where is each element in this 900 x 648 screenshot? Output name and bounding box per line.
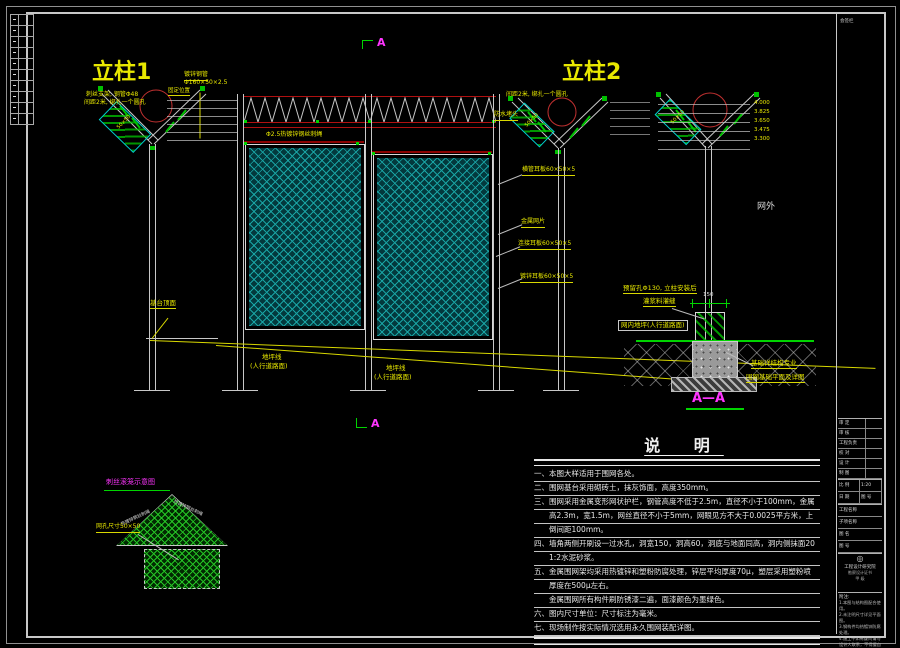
guide-line <box>167 116 238 117</box>
mesh-panel-1 <box>245 144 365 330</box>
elevation-line <box>658 149 750 150</box>
note-line: 二、围网基台采用砌砖土，抹灰饰面，高度350mm。 <box>534 482 820 496</box>
note-line: 三、围网采用金属变形网状护栏，钢管高度不低于2.5m，直径不小于100mm，金属… <box>534 496 820 510</box>
inner-pavement-label: 网内地坪(人行道路面) <box>618 320 688 331</box>
section-marker-top-label: A <box>377 37 386 50</box>
guide-line <box>167 108 238 109</box>
mesh-fill <box>249 148 361 326</box>
titleblock-row-label: 工程负责 <box>838 439 866 448</box>
guide-line <box>167 140 238 141</box>
titleblock-row: 图 名 <box>838 529 882 541</box>
elevation-line <box>658 131 750 132</box>
note-line: 金属围网所有构件刷防锈漆二遍，面漆颜色为墨绿色。 <box>534 594 820 608</box>
company-cert-line2: 甲 级 <box>838 576 882 582</box>
signoff-row <box>11 92 33 103</box>
titleblock-row-label: 设 计 <box>838 459 866 468</box>
titleblock-note: 2.未注明尺寸详见平面图。 <box>839 612 881 624</box>
elevation-line <box>658 122 750 123</box>
outside-fence-label: 网外 <box>757 202 775 212</box>
scale-value: 1:20 <box>860 480 882 491</box>
guide-line <box>610 102 650 103</box>
column1-pipe-label-line2: Φ160×50×2.5 <box>184 80 227 87</box>
titleblock-row-label: 校 对 <box>838 449 866 458</box>
titleblock-row: 工程负责 <box>838 439 882 449</box>
signoff-row <box>11 37 33 48</box>
titleblock-row-label: 审 核 <box>838 429 866 438</box>
mesh-fill <box>377 158 489 336</box>
column2-title: 立柱2 <box>562 60 621 85</box>
note-line: 五、金属围网架均采用热镀锌和塑粉防腐处理，锌层平均厚度70μ，塑层采用塑粉喷涂， <box>534 566 820 580</box>
section-marker-top-bracket <box>362 40 363 49</box>
panel-corner-dot <box>356 142 359 145</box>
panel-corner-dot <box>244 142 247 145</box>
panel-corner-dot <box>488 152 491 155</box>
sheet-label: 图 号 <box>860 492 882 503</box>
post-footing-line <box>350 390 386 391</box>
dim-tick <box>709 299 710 308</box>
detail-mesh-rect <box>144 549 220 589</box>
section-marker-bottom-label: A <box>371 418 380 431</box>
column2-cap-label: 防水堵头 <box>494 112 518 121</box>
note-line: 1:2水泥砂浆。 <box>534 552 820 566</box>
post-footing-line <box>543 390 579 391</box>
elevation-label: 3.300 <box>754 136 770 142</box>
post-footing-line <box>134 390 170 391</box>
foundation-dim: 150 <box>703 292 714 298</box>
section-title-underline <box>686 408 744 410</box>
fence-post <box>365 94 372 390</box>
notes-title: 说 明 <box>534 432 820 456</box>
notes-rule <box>534 459 820 466</box>
signoff-row <box>11 103 33 114</box>
section-title: A—A <box>692 392 725 407</box>
post-footing-line <box>478 390 514 391</box>
signoff-row <box>11 70 33 81</box>
column2-label-2: 金属网片 <box>521 219 545 228</box>
elevation-line <box>658 104 750 105</box>
column2-label-4: 镀锌耳板60×50×5 <box>520 274 573 283</box>
titleblock-note: 4.施工中如有疑问请与设计人联系，不得擅自更改。 <box>839 636 881 648</box>
note-line: 六、图内尺寸单位：尺寸标注为毫米。 <box>534 608 820 622</box>
signoff-row <box>11 114 33 124</box>
date-label: 日 期 <box>838 492 860 503</box>
note-line: 一、本图大样适用于围网各处。 <box>534 468 820 482</box>
detail-mesh-label: 网孔尺寸50×50 <box>96 524 140 533</box>
titleblock-scale-row: 比 例 1:20 <box>838 480 882 492</box>
signoff-row <box>11 81 33 92</box>
panel-corner-dot <box>372 152 375 155</box>
titleblock-row: 工程名称 <box>838 505 882 517</box>
concrete-footing <box>692 341 738 378</box>
guide-line <box>167 100 238 101</box>
titleblock-row: 审 定 <box>838 419 882 429</box>
panel1-top-rail <box>244 141 364 143</box>
titleblock-date-row: 日 期 图 号 <box>838 492 882 504</box>
titleblock-row-label: 制 图 <box>838 469 866 478</box>
ground-label-2-line2: (人行道路面) <box>374 374 412 381</box>
elevation-line <box>658 113 750 114</box>
detail-title: 刺丝滚笼示意图 <box>106 478 155 486</box>
column1-post <box>149 144 156 390</box>
guide-line <box>610 126 650 127</box>
titleblock-note: 3.钢构件均热镀锌防腐处理。 <box>839 624 881 636</box>
fixing-dot <box>316 120 319 123</box>
elevation-label: 4.000 <box>754 100 770 106</box>
signoff-row <box>11 15 33 26</box>
notes-section: 说 明 一、本图大样适用于围网各处。 二、围网基台采用砌砖土，抹灰饰面，高度35… <box>534 432 820 645</box>
elevation-line <box>658 140 750 141</box>
note-line: 倒间距100mm。 <box>534 524 820 538</box>
notes-bottom-rule <box>534 637 820 645</box>
dim-tick <box>692 299 693 308</box>
column2-label-1: 横管耳板60×50×5 <box>522 167 575 176</box>
footing-base-slab <box>671 377 757 392</box>
guide-line <box>610 110 650 111</box>
note-line: 高2.3m，宽1.5m，网丝直径不小于5mm，网眼见方不大于0.0025平方米，… <box>534 510 820 524</box>
mesh-panel-2 <box>373 154 493 340</box>
signoff-row <box>11 26 33 37</box>
hole-label-line2: 灌浆料灌缝 <box>643 298 676 307</box>
column2-label-3: 连接耳板60×50×5 <box>518 241 571 250</box>
titleblock-zone-label: 会签栏 <box>840 18 854 24</box>
titleblock-row: 子项名称 <box>838 517 882 529</box>
titleblock-row: 图 号 <box>838 541 882 553</box>
titleblock-row: 审 核 <box>838 429 882 439</box>
platform-top-label: 基台顶面 <box>150 300 176 309</box>
fixing-dot <box>244 120 247 123</box>
section-marker-top-bracket <box>362 40 373 41</box>
guide-line <box>610 134 650 135</box>
note-line: 四、墙角两侧开刷设一过水孔，洞宽150，洞高60，洞底与地面同高，洞内侧抹面20… <box>534 538 820 552</box>
elevation-label: 3.825 <box>754 109 770 115</box>
ground-label-1-line1: 地坪线 <box>262 354 282 361</box>
platform-top-line <box>146 338 218 339</box>
titleblock-row: 设 计 <box>838 459 882 469</box>
hole-label-line1: 预留孔Φ130, 立柱安装后 <box>623 285 697 294</box>
column2-post <box>558 148 565 390</box>
signoff-strip <box>10 14 34 125</box>
barbed-wire-label: Φ2.5热镀锌钢丝刺绳 <box>266 132 322 139</box>
titleblock-row-label: 审 定 <box>838 419 866 428</box>
foundation-note-line1: 基础详结构专业 <box>751 360 797 369</box>
titleblock-row: 制 图 <box>838 469 882 479</box>
panel2-top-rail <box>372 151 492 153</box>
column1-position-label: 固定位置 <box>168 88 190 96</box>
dim-tick <box>726 299 727 308</box>
post-footing-line <box>222 390 258 391</box>
foundation-note-line2: 围网基础平面及详图 <box>746 374 805 383</box>
titleblock-divider <box>836 12 837 634</box>
signoff-row <box>11 59 33 70</box>
guide-line <box>167 132 238 133</box>
cad-drawing-canvas: 立柱1 立柱2 A A 50×50 刺丝支架, 钢管Φ48 间距2米, 绑扎一个… <box>0 0 900 648</box>
elevation-label: 3.650 <box>754 118 770 124</box>
titleblock-note: 1.本图与结构图配合使用。 <box>839 600 881 612</box>
column1-note-line2: 间距2米, 绑扎一个圆孔 <box>84 100 146 107</box>
ground-label-1-line2: (人行道路面) <box>250 363 288 370</box>
title-block: 会签栏 审 定 审 核 工程负责 校 对 设 计 制 图 比 例 1:20 日 … <box>838 12 882 634</box>
fence-post <box>237 94 244 390</box>
ground-label-2-line1: 地坪线 <box>386 365 406 372</box>
dim-line <box>690 303 730 304</box>
elevation-label: 3.475 <box>754 127 770 133</box>
titleblock-row: 校 对 <box>838 449 882 459</box>
scale-label: 比 例 <box>838 480 860 491</box>
company-logo-icon: ◎ <box>838 554 882 564</box>
note-line: 厚度在500μ左右。 <box>534 580 820 594</box>
column1-note-line1: 刺丝支架, 钢管Φ48 <box>86 92 138 99</box>
fence-post <box>493 94 500 390</box>
guide-line <box>610 118 650 119</box>
detail-title-underline <box>104 490 170 491</box>
guide-line <box>167 124 238 125</box>
section-marker-bottom-bracket <box>356 427 367 428</box>
column2-note: 间距2米, 绑扎一个圆孔 <box>506 92 568 99</box>
note-line: 七、现场制作按实际情况选用永久围网装配详图。 <box>534 622 820 636</box>
signoff-row <box>11 48 33 59</box>
